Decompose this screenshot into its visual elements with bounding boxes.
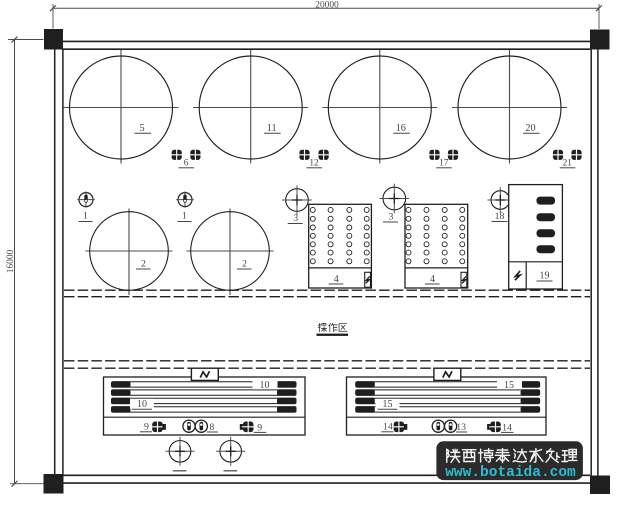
svg-text:2: 2 [141, 259, 146, 270]
svg-text:18: 18 [495, 211, 505, 222]
svg-text:13: 13 [456, 422, 466, 433]
svg-text:19: 19 [540, 271, 550, 282]
svg-text:9: 9 [257, 422, 262, 433]
svg-text:6: 6 [184, 159, 189, 169]
svg-text:4: 4 [430, 274, 435, 285]
svg-text:11: 11 [267, 123, 277, 134]
svg-text:10: 10 [137, 399, 147, 410]
svg-text:14: 14 [502, 422, 512, 433]
svg-text:9: 9 [144, 422, 149, 433]
svg-text:www.botaida.com: www.botaida.com [445, 465, 576, 481]
svg-text:20: 20 [525, 123, 535, 134]
svg-text:5: 5 [139, 123, 144, 134]
svg-text:20000: 20000 [315, 1, 339, 11]
svg-text:17: 17 [439, 159, 449, 169]
svg-text:8: 8 [209, 422, 214, 433]
svg-text:1: 1 [83, 211, 88, 222]
svg-text:10: 10 [260, 380, 270, 391]
svg-text:12: 12 [309, 159, 319, 169]
svg-text:3: 3 [389, 212, 394, 223]
svg-text:3: 3 [293, 213, 298, 224]
svg-text:14: 14 [383, 422, 393, 433]
svg-text:2: 2 [242, 259, 247, 270]
svg-text:16: 16 [396, 123, 406, 134]
svg-text:15: 15 [383, 399, 393, 410]
svg-text:4: 4 [334, 274, 339, 285]
svg-text:1: 1 [182, 211, 187, 222]
svg-text:21: 21 [563, 159, 573, 169]
svg-text:16000: 16000 [6, 249, 16, 273]
svg-text:15: 15 [504, 380, 514, 391]
